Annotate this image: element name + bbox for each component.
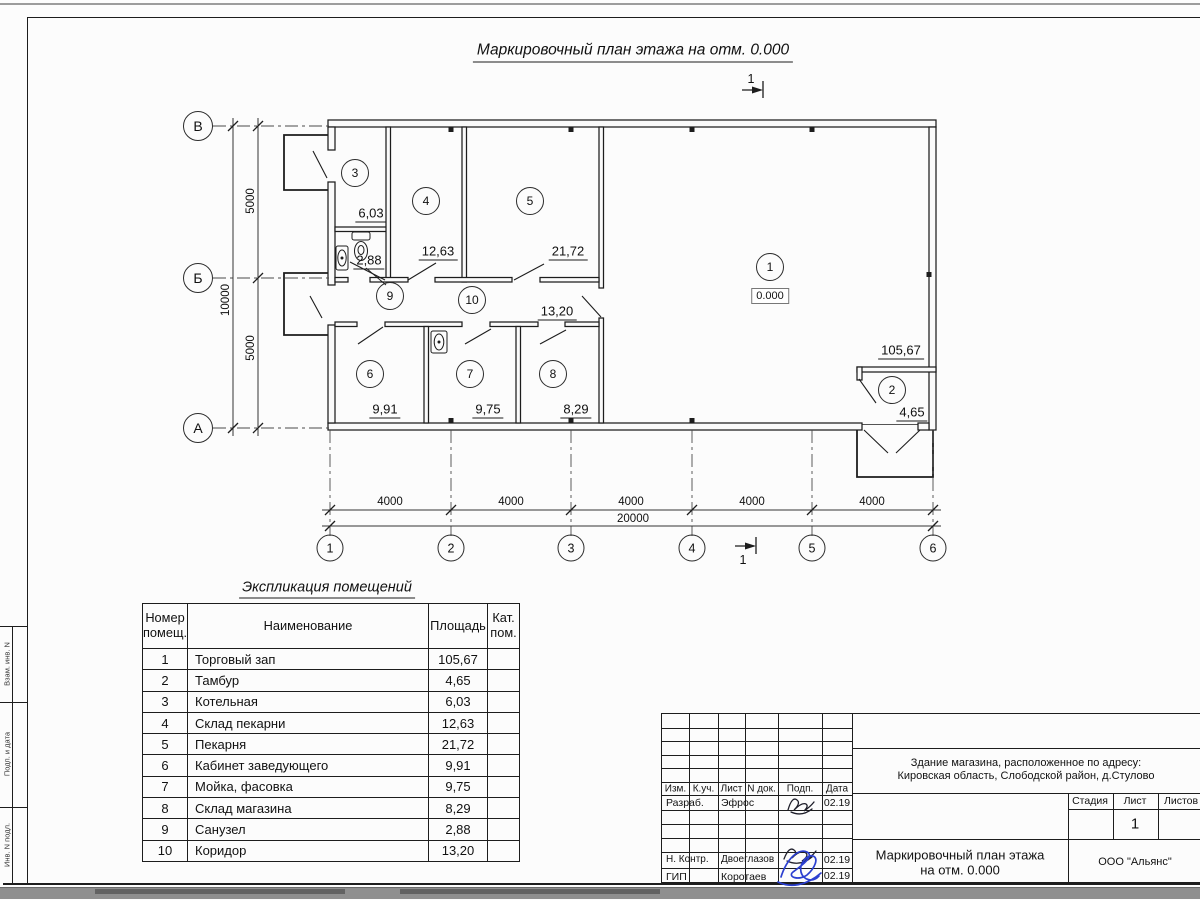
axis-letter: В xyxy=(193,118,202,134)
room-number: 2 xyxy=(889,383,896,397)
room-row-name: Торговый зап xyxy=(188,649,429,670)
sheets-label: Листов xyxy=(1164,795,1198,807)
stamp-role: Н. Контр. xyxy=(666,854,709,865)
room-row-category xyxy=(488,692,519,713)
dimension-label: 5000 xyxy=(245,335,257,361)
room-row-number: 9 xyxy=(143,819,188,840)
room-row-name: Склад пекарни xyxy=(188,713,429,734)
room-row-name: Тамбур xyxy=(188,670,429,691)
axis-bubble-col: 4 xyxy=(679,535,706,562)
dimension-label: 5000 xyxy=(245,188,257,214)
axis-bubble-row: Б xyxy=(183,263,213,293)
explication-table: Номер помещ. Наименование Площадь Кат. п… xyxy=(142,603,520,862)
stamp-col-ndok: N док. xyxy=(747,783,776,794)
room-row-category xyxy=(488,734,519,755)
room-row-number: 8 xyxy=(143,798,188,819)
room-number-bubble: 3 xyxy=(341,159,369,187)
doc-title: на отм. 0.000 xyxy=(920,863,1000,878)
axis-number: 5 xyxy=(809,541,816,555)
dimension-label: 4000 xyxy=(618,496,644,508)
room-row-name: Мойка, фасовка xyxy=(188,777,429,798)
room-row-number: 6 xyxy=(143,755,188,776)
column-header: Наименование xyxy=(188,604,429,649)
room-row-area: 9,75 xyxy=(429,777,488,798)
axis-number: 3 xyxy=(568,541,575,555)
room-row-category xyxy=(488,819,519,840)
room-row-name: Коридор xyxy=(188,841,429,861)
room-row-area: 2,88 xyxy=(429,819,488,840)
room-number: 5 xyxy=(527,194,534,208)
room-number-bubble: 2 xyxy=(878,376,906,404)
room-area-label: 8,29 xyxy=(560,402,591,419)
stamp-date: 02.19 xyxy=(824,854,850,866)
room-area-label: 4,65 xyxy=(896,405,927,422)
axis-number: 4 xyxy=(689,541,696,555)
axis-bubble-col: 6 xyxy=(920,535,947,562)
room-number: 4 xyxy=(423,194,430,208)
room-row-category xyxy=(488,713,519,734)
room-row-category xyxy=(488,841,519,861)
room-row-area: 6,03 xyxy=(429,692,488,713)
room-number-bubble: 7 xyxy=(456,360,484,388)
stamp-name: Эфрос xyxy=(721,797,754,809)
room-row-category xyxy=(488,798,519,819)
axis-bubble-row: А xyxy=(183,413,213,443)
section-mark-label: 1 xyxy=(740,553,747,567)
section-mark-icon xyxy=(735,81,763,554)
stamp-name: Двоеглазов xyxy=(721,854,774,865)
explication-title: Экспликация помещений xyxy=(239,580,415,599)
room-area-label: 105,67 xyxy=(878,343,924,360)
room-row-name: Санузел xyxy=(188,819,429,840)
room-row-category xyxy=(488,777,519,798)
stamp-col-list: Лист xyxy=(721,783,743,794)
axis-bubble-row: В xyxy=(183,111,213,141)
dimension-label: 4000 xyxy=(859,496,885,508)
stamp-col-kuch: К.уч. xyxy=(693,783,715,794)
axis-letter: Б xyxy=(193,270,202,286)
room-row-number: 2 xyxy=(143,670,188,691)
room-number: 7 xyxy=(467,367,474,381)
room-number: 9 xyxy=(387,289,394,303)
sheet-label: Лист xyxy=(1124,795,1147,807)
axis-number: 6 xyxy=(930,541,937,555)
stamp-col-data: Дата xyxy=(826,783,848,794)
room-row-name: Кабинет заведующего xyxy=(188,755,429,776)
room-row-number: 4 xyxy=(143,713,188,734)
dimension-label: 10000 xyxy=(220,284,232,316)
room-row-area: 13,20 xyxy=(429,841,488,861)
dimension-label: 4000 xyxy=(739,496,765,508)
room-row-area: 8,29 xyxy=(429,798,488,819)
room-number: 6 xyxy=(367,367,374,381)
room-area-label: 12,63 xyxy=(419,244,458,261)
axis-bubble-col: 2 xyxy=(438,535,465,562)
room-row-number: 5 xyxy=(143,734,188,755)
room-row-area: 12,63 xyxy=(429,713,488,734)
room-row-name: Склад магазина xyxy=(188,798,429,819)
room-row-category xyxy=(488,670,519,691)
room-number-bubble: 8 xyxy=(539,360,567,388)
room-number: 1 xyxy=(767,260,774,274)
axis-letter: А xyxy=(193,420,202,436)
room-row-category xyxy=(488,755,519,776)
room-number-bubble: 1 xyxy=(756,253,784,281)
stamp-col-podp: Подп. xyxy=(787,783,814,794)
object-address: Кировская область, Слободской район, д.С… xyxy=(897,770,1154,782)
room-row-number: 3 xyxy=(143,692,188,713)
room-number-bubble: 9 xyxy=(376,282,404,310)
dimension-label: 4000 xyxy=(498,496,524,508)
column-header: Номер помещ. xyxy=(143,604,188,649)
title-block: Изм. К.уч. Лист N док. Подп. Дата Разраб… xyxy=(661,713,1200,883)
sheet-title: Маркировочный план этажа на отм. 0.000 xyxy=(473,42,793,63)
room-row-number: 1 xyxy=(143,649,188,670)
room-number: 10 xyxy=(465,293,478,307)
room-number-bubble: 4 xyxy=(412,187,440,215)
axis-bubble-col: 1 xyxy=(317,535,344,562)
dimension-label: 20000 xyxy=(617,513,649,525)
object-address: Здание магазина, расположенное по адресу… xyxy=(911,757,1142,769)
sheet-number: 1 xyxy=(1131,816,1139,833)
room-row-name: Котельная xyxy=(188,692,429,713)
stamp-date: 02.19 xyxy=(824,870,850,882)
stamp-col-izm: Изм. xyxy=(665,783,686,794)
room-row-area: 105,67 xyxy=(429,649,488,670)
stamp-date: 02.19 xyxy=(824,797,850,809)
room-area-label: 21,72 xyxy=(549,244,588,261)
elevation-mark: 0.000 xyxy=(751,288,789,304)
axis-number: 1 xyxy=(327,541,334,555)
room-number: 3 xyxy=(352,166,359,180)
doc-title: Маркировочный план этажа xyxy=(876,848,1045,863)
column-header: Площадь xyxy=(429,604,488,649)
axis-bubble-col: 5 xyxy=(799,535,826,562)
room-row-area: 4,65 xyxy=(429,670,488,691)
room-area-label: 6,03 xyxy=(355,206,386,223)
room-row-category xyxy=(488,649,519,670)
stage-label: Стадия xyxy=(1072,795,1108,807)
company-name: ООО "Альянс" xyxy=(1098,856,1172,868)
room-number-bubble: 5 xyxy=(516,187,544,215)
axis-number: 2 xyxy=(448,541,455,555)
dimension-label: 4000 xyxy=(377,496,403,508)
stamp-role: ГИП xyxy=(666,871,687,883)
toilet-icon xyxy=(352,232,370,240)
room-row-name: Пекарня xyxy=(188,734,429,755)
stamp-name: Коротаев xyxy=(721,871,766,883)
room-area-label: 13,20 xyxy=(538,304,577,321)
axis-bubble-col: 3 xyxy=(558,535,585,562)
column-header: Кат. пом. xyxy=(488,604,519,649)
room-area-label: 2,88 xyxy=(353,253,384,270)
room-row-area: 21,72 xyxy=(429,734,488,755)
room-number-bubble: 6 xyxy=(356,360,384,388)
room-number-bubble: 10 xyxy=(458,286,486,314)
stamp-role: Разраб. xyxy=(666,797,704,809)
room-row-area: 9,91 xyxy=(429,755,488,776)
room-area-label: 9,91 xyxy=(369,402,400,419)
room-row-number: 10 xyxy=(143,841,188,861)
room-area-label: 9,75 xyxy=(472,402,503,419)
drawing-sheet: Взам. инв. N Подп. и дата Инв. N подл. xyxy=(0,0,1200,900)
room-number: 8 xyxy=(550,367,557,381)
section-mark-label: 1 xyxy=(748,72,755,86)
room-row-number: 7 xyxy=(143,777,188,798)
